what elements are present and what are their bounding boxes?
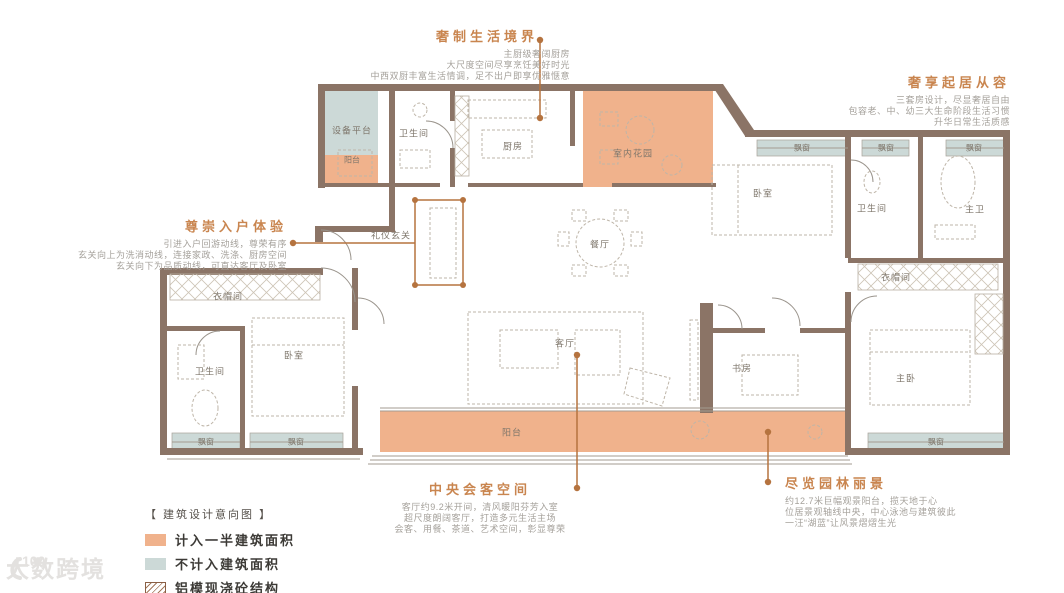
annotation-kitchen-line: 主厨级奢阔厨房 xyxy=(370,49,570,60)
legend-swatch-half-area xyxy=(145,534,166,546)
legend-row: 计入一半建筑面积 xyxy=(145,530,295,549)
floor-plan-page: 设备平台 阳台 卫生间 厨房 室内花园 礼仪玄关 餐厅 客厅 卧室 卫生间 主卫… xyxy=(0,0,1064,593)
annotation-kitchen-line: 中西双厨丰富生活情调，足不出户即享优雅惬意 xyxy=(370,71,570,82)
legend-label: 不计入建筑面积 xyxy=(175,554,280,573)
watermark: 100 大数跨境 xyxy=(6,550,106,584)
annotation-living-line: 会客、用餐、茶道、艺术空间，彰显尊荣 xyxy=(385,524,575,535)
annotation-living-title: 中央会客空间 xyxy=(385,479,575,498)
annotation-foyer-title: 尊崇入户体验 xyxy=(78,216,287,235)
legend-row: 铝模现浇砼结构 xyxy=(145,578,295,593)
room-label-bay-window: 飘窗 xyxy=(288,437,304,448)
main-balcony-area xyxy=(380,411,845,452)
legend-label: 计入一半建筑面积 xyxy=(175,530,295,549)
room-label-bay-window: 飘窗 xyxy=(878,143,894,154)
annotation-living-line: 客厅约9.2米开间，清风暖阳芬芳入室 xyxy=(385,502,575,513)
annotation-bedrooms-title: 奢享起居从容 xyxy=(848,72,1010,91)
watermark-logo-icon: 100 xyxy=(6,550,58,584)
room-label-living: 客厅 xyxy=(555,337,575,350)
room-label-bay-window: 飘窗 xyxy=(966,143,982,154)
annotation-foyer-line: 引进入户回游动线，尊荣有序 xyxy=(78,239,287,250)
svg-text:100: 100 xyxy=(22,553,46,569)
annotation-bedrooms: 奢享起居从容 三套房设计，尽显奢居自由 包容老、中、幼三大生命阶段生活习惯 升华… xyxy=(848,72,1010,128)
room-label-bathroom-right: 卫生间 xyxy=(857,202,887,215)
annotation-kitchen-title: 奢制生活境界 xyxy=(370,26,538,45)
legend-row: 不计入建筑面积 xyxy=(145,554,295,573)
annotation-balcony-title: 尽览园林丽景 xyxy=(785,473,956,492)
room-label-master-bedroom: 主卧 xyxy=(896,372,916,385)
room-label-bay-window: 飘窗 xyxy=(928,437,944,448)
legend-title: 【 建筑设计意向图 】 xyxy=(145,506,295,522)
room-label-foyer: 礼仪玄关 xyxy=(371,229,411,242)
room-label-bathroom-top: 卫生间 xyxy=(399,127,429,140)
annotation-balcony-line: 一汪“湖蓝”让风景熠熠生光 xyxy=(785,518,956,529)
annotation-kitchen-line: 大尺度空间尽享烹饪美好时光 xyxy=(370,60,570,71)
room-label-small-balcony: 阳台 xyxy=(344,155,360,166)
annotation-living-line: 超尺度朗阔客厅，打造多元生活主场 xyxy=(385,513,575,524)
annotation-foyer-line: 玄关向上为洗消动线，连接家政、洗涤、厨房空间 xyxy=(78,250,287,261)
annotation-balcony: 尽览园林丽景 约12.7米巨幅观景阳台，揽天地于心 位居景观轴线中央，中心泳池与… xyxy=(785,473,956,529)
indoor-garden-area xyxy=(583,90,713,187)
room-label-bay-window: 飘窗 xyxy=(198,437,214,448)
annotation-kitchen: 奢制生活境界 主厨级奢阔厨房 大尺度空间尽享烹饪美好时光 中西双厨丰富生活情调，… xyxy=(370,26,570,82)
legend-swatch-excluded-area xyxy=(145,558,166,570)
room-label-dining: 餐厅 xyxy=(590,238,610,251)
room-label-study: 书房 xyxy=(732,362,752,375)
room-label-master-bath: 主卫 xyxy=(965,203,985,216)
annotation-foyer-line: 玄关向下为品质动线，可直达客厅及卧室 xyxy=(78,261,287,272)
annotation-balcony-line: 约12.7米巨幅观景阳台，揽天地于心 xyxy=(785,496,956,507)
legend-label: 铝模现浇砼结构 xyxy=(175,578,280,593)
room-label-indoor-garden: 室内花园 xyxy=(613,147,653,160)
annotation-living: 中央会客空间 客厅约9.2米开间，清风暖阳芬芳入室 超尺度朗阔客厅，打造多元生活… xyxy=(385,479,575,535)
room-label-equipment-platform: 设备平台 xyxy=(332,124,372,137)
annotation-bedrooms-line: 升华日常生活质感 xyxy=(848,117,1010,128)
room-label-bedroom-1: 卧室 xyxy=(284,349,304,362)
annotation-bedrooms-line: 包容老、中、幼三大生命阶段生活习惯 xyxy=(848,106,1010,117)
foyer-highlight xyxy=(412,197,466,288)
room-label-closet-left: 衣帽间 xyxy=(213,290,243,303)
annotation-foyer: 尊崇入户体验 引进入户回游动线，尊荣有序 玄关向上为洗消动线，连接家政、洗涤、厨… xyxy=(78,216,287,272)
room-label-bedroom-2: 卧室 xyxy=(753,187,773,200)
room-label-bathroom-left: 卫生间 xyxy=(195,365,225,378)
room-label-main-balcony: 阳台 xyxy=(502,426,522,439)
legend-swatch-concrete-structure xyxy=(145,582,166,593)
room-label-closet-right: 衣帽间 xyxy=(881,271,911,284)
legend: 【 建筑设计意向图 】 计入一半建筑面积 不计入建筑面积 铝模现浇砼结构 xyxy=(145,506,295,593)
room-label-kitchen: 厨房 xyxy=(503,140,523,153)
room-label-bay-window: 飘窗 xyxy=(794,143,810,154)
annotation-balcony-line: 位居景观轴线中央，中心泳池与建筑彼此 xyxy=(785,507,956,518)
annotation-bedrooms-line: 三套房设计，尽显奢居自由 xyxy=(848,95,1010,106)
